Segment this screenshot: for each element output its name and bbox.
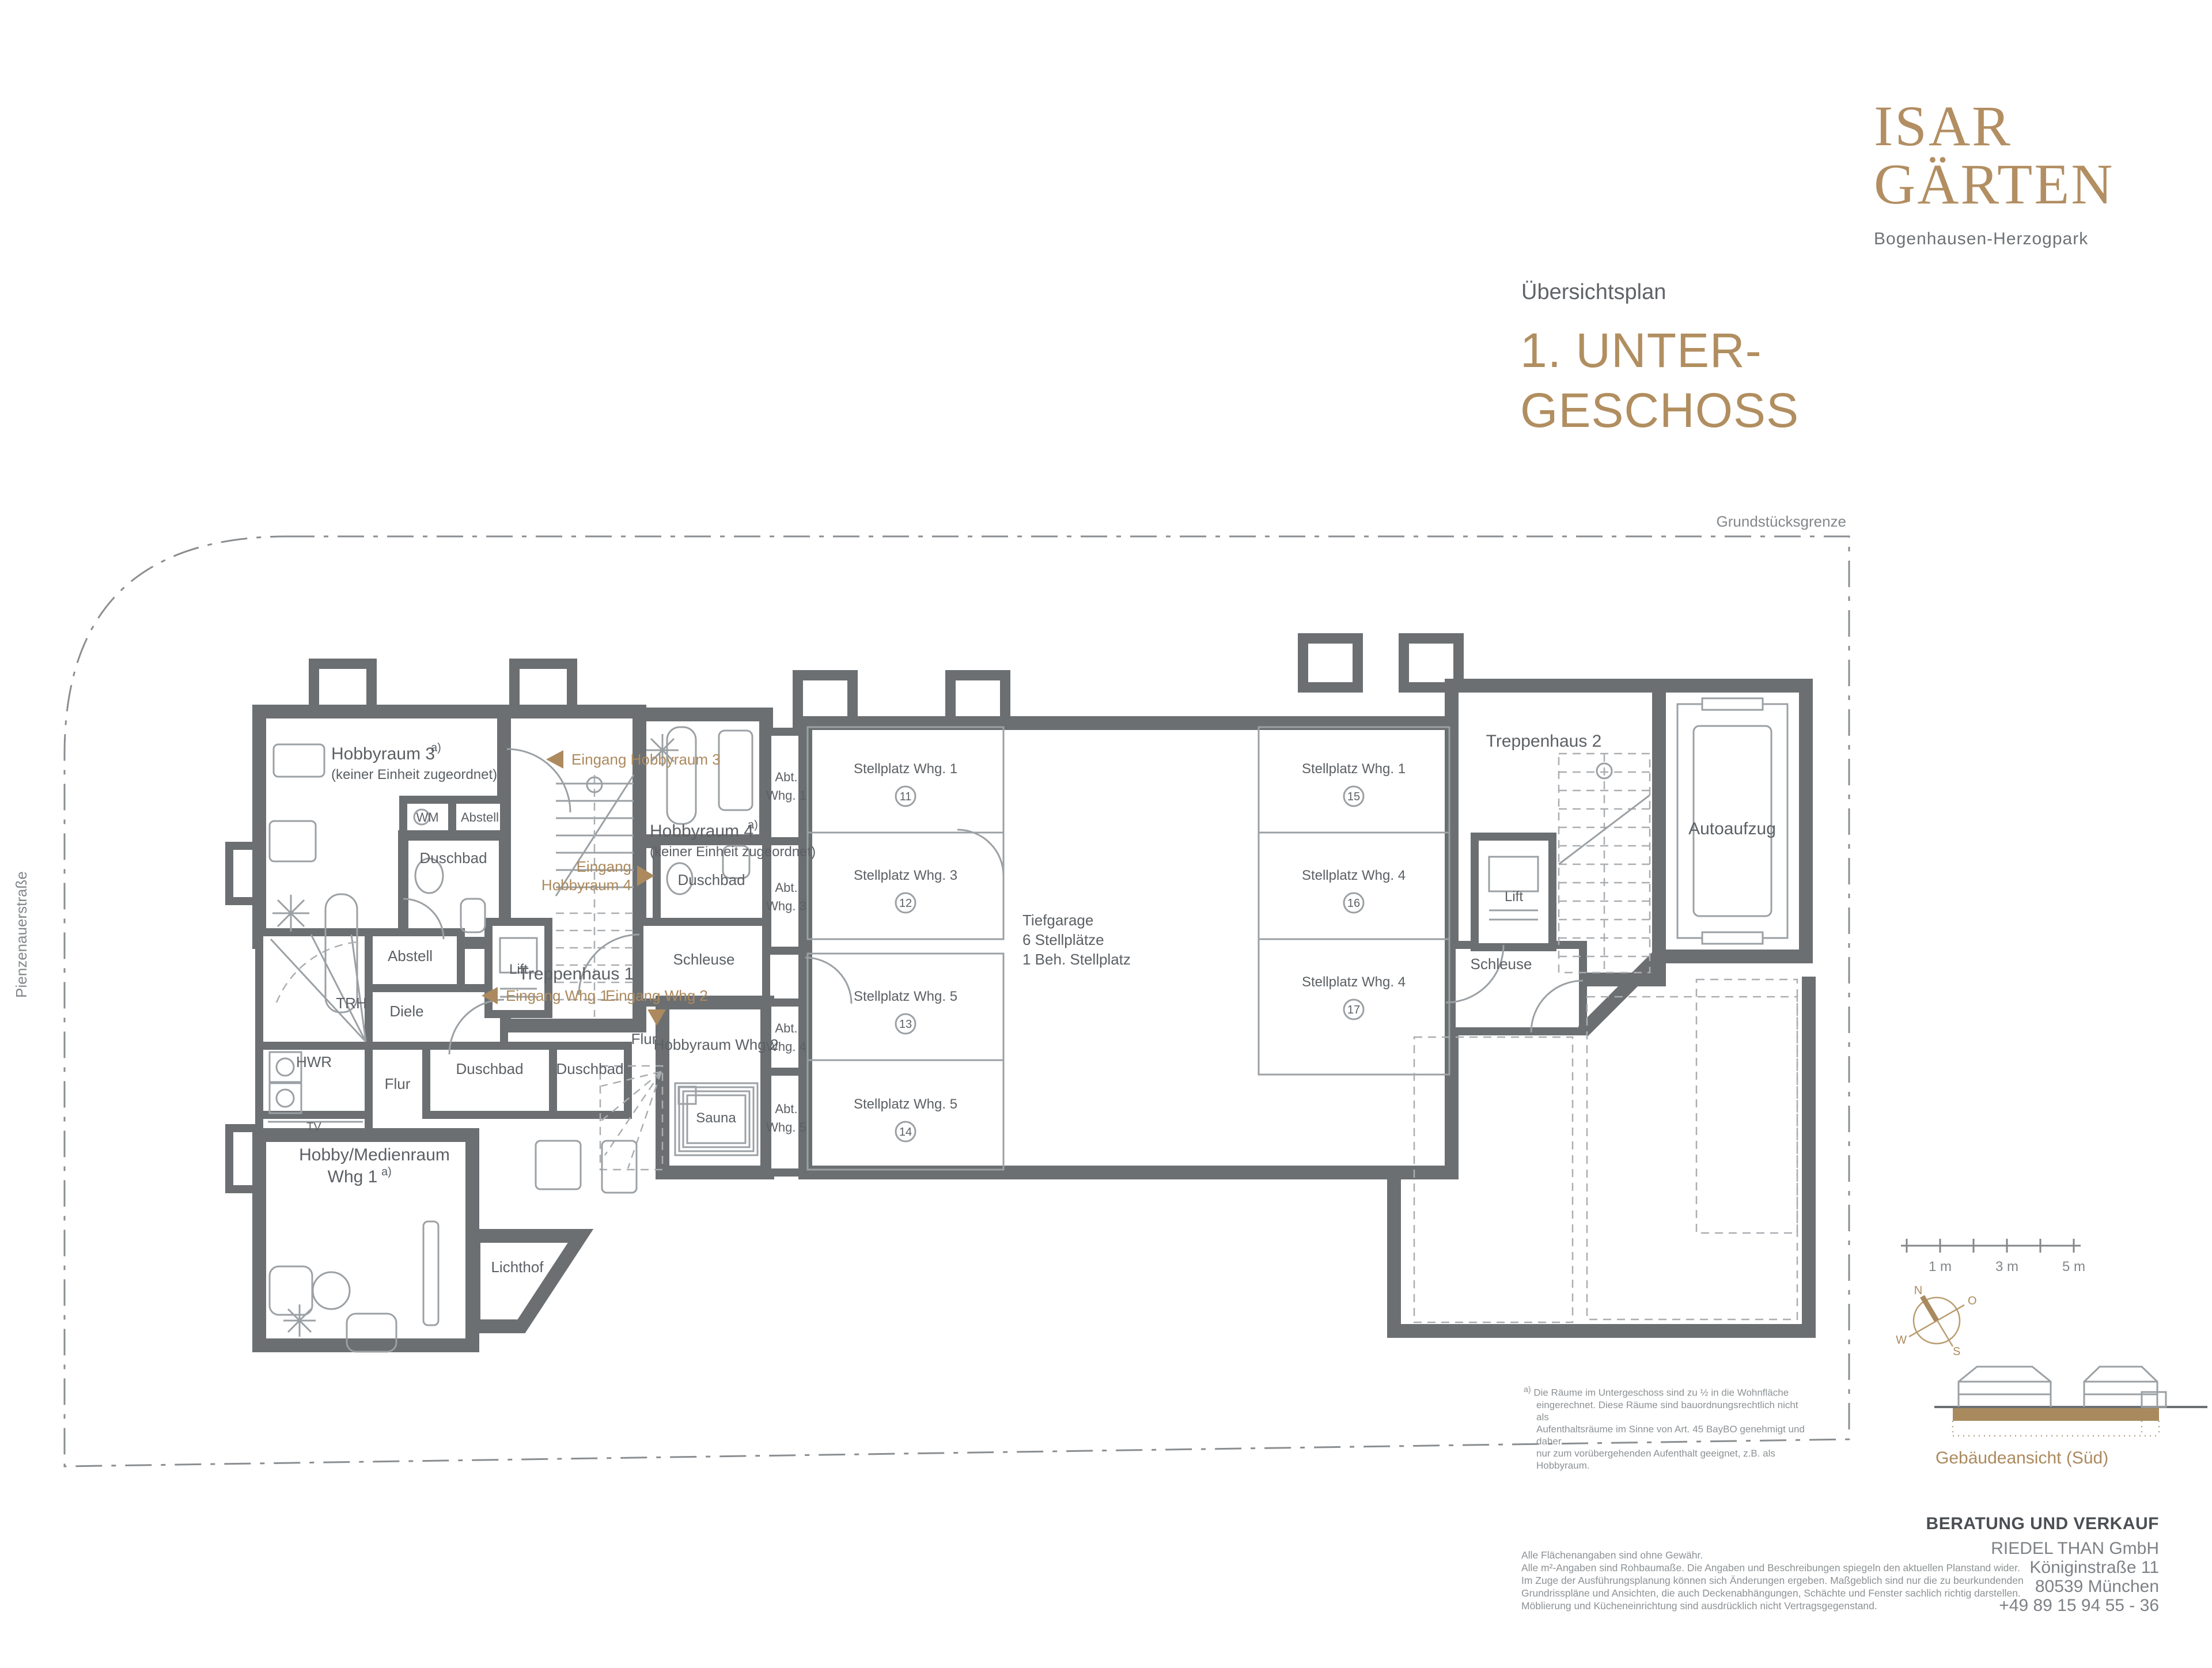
footnote-marker: a) <box>1524 1385 1531 1394</box>
stall-num-15: 15 <box>1347 790 1360 803</box>
contact-phone: +49 89 15 94 55 - 36 <box>1926 1596 2159 1615</box>
room-label-schleuse-rechts: Schleuse <box>1471 955 1532 973</box>
stall-label-11: Stellplatz Whg. 1 <box>854 761 957 777</box>
stall-label-15: Stellplatz Whg. 1 <box>1302 761 1406 777</box>
compass-icon: N O W S <box>1896 1284 1976 1358</box>
elevation-ground <box>1953 1408 2159 1421</box>
stall-label-13: Stellplatz Whg. 5 <box>854 989 957 1004</box>
contact-company: RIEDEL THAN GmbH <box>1926 1539 2159 1558</box>
room-label-hobbyraum3: Hobbyraum 3 <box>331 744 435 763</box>
brochure-page: Pienzenauerstraße Grundstücksgrenze Hobb… <box>0 0 2212 1668</box>
compass-s: S <box>1953 1345 1960 1358</box>
label-tiefgarage: Tiefgarage <box>1022 911 1093 929</box>
room-label-flur-whg1: Flur <box>385 1075 411 1092</box>
room-label-tv: TV <box>306 1121 321 1133</box>
floor-plan-drawing: Pienzenauerstraße Grundstücksgrenze Hobb… <box>0 0 2212 1668</box>
page-title: 1. UNTER- GESCHOSS <box>1520 320 1799 440</box>
rooms-right-block <box>805 686 1809 1331</box>
page-title-line1: 1. UNTER- <box>1520 320 1799 380</box>
room-lichthof <box>474 1236 581 1326</box>
rooms-left-block <box>259 712 639 1345</box>
label-abt5b: Whg. 5 <box>766 1120 806 1134</box>
room-label-schleuse-links: Schleuse <box>673 951 735 968</box>
entrance-hobbyraum4-2: Hobbyraum 4 <box>541 876 631 894</box>
footnote-line: Aufenthaltsräume im Sinne von Art. 45 Ba… <box>1524 1423 1812 1447</box>
stall-label-14: Stellplatz Whg. 5 <box>854 1096 957 1112</box>
scale-5m: 5 m <box>2062 1259 2085 1274</box>
contact-city: 80539 München <box>1926 1577 2159 1596</box>
room-label-hobby-medienraum-2: Whg 1 <box>328 1167 378 1186</box>
label-tiefgarage-3: 1 Beh. Stellplatz <box>1022 951 1131 968</box>
entrance-hobbyraum3: Eingang Hobbyraum 3 <box>571 751 721 768</box>
footnote-ref: a) <box>748 819 758 831</box>
room-label-autoaufzug: Autoaufzug <box>1688 819 1776 838</box>
elevation-label: Gebäudeansicht (Süd) <box>1935 1448 2108 1467</box>
room-label-lift2: Lift <box>1505 889 1523 905</box>
scale-3m: 3 m <box>1995 1259 2018 1274</box>
room-label-hobby-medienraum: Hobby/Medienraum <box>299 1145 450 1164</box>
room-note-hobbyraum3: (keiner Einheit zugeordnet) <box>331 767 497 782</box>
room-label-hobbyraum-whg2: Hobbyraum Whg 2 <box>654 1036 779 1053</box>
scale-1m: 1 m <box>1929 1259 1952 1274</box>
room-label-treppenhaus1: Treppenhaus 1 <box>518 965 634 984</box>
room-duschbad-whg2 <box>553 1046 628 1115</box>
room-label-wm: WM <box>416 810 438 824</box>
stall-label-12: Stellplatz Whg. 3 <box>854 868 957 883</box>
entrance-whg1: Eingang Whg 1 <box>506 987 608 1004</box>
footnote-line: a) Die Räume im Untergeschoss sind zu ½ … <box>1524 1384 1812 1399</box>
room-note-hobbyraum4: (keiner Einheit zugeordnet) <box>650 844 816 860</box>
room-label-diele: Diele <box>389 1003 423 1020</box>
label-tiefgarage-2: 6 Stellplätze <box>1022 931 1104 948</box>
room-label-hobbyraum4: Hobbyraum 4 <box>650 822 753 841</box>
stall-num-11: 11 <box>900 790 912 803</box>
stall-label-17: Stellplatz Whg. 4 <box>1302 974 1406 990</box>
room-label-sauna: Sauna <box>696 1110 736 1126</box>
room-label-duschbad-h3: Duschbad <box>419 849 487 867</box>
street-label: Pienzenauerstraße <box>13 871 30 998</box>
entrance-hobbyraum4-1: Eingang <box>577 858 631 875</box>
brand-subtitle: Bogenhausen-Herzogpark <box>1874 229 2088 249</box>
building-elevation: Gebäudeansicht (Süd) <box>1934 1367 2207 1467</box>
stall-num-16: 16 <box>1347 897 1360 910</box>
room-label-treppenhaus2: Treppenhaus 2 <box>1486 732 1602 751</box>
page-eyebrow: Übersichtsplan <box>1521 280 1666 305</box>
room-label-lichthof: Lichthof <box>491 1258 544 1276</box>
compass-w: W <box>1896 1334 1907 1346</box>
footnote-ref: a) <box>431 742 441 754</box>
stall-num-12: 12 <box>899 897 912 910</box>
label-abt5: Abt. <box>775 1102 797 1116</box>
label-abt4: Abt. <box>775 1021 797 1035</box>
room-label-duschbad-whg1: Duschbad <box>456 1060 523 1077</box>
room-duschbad-whg1 <box>426 1046 553 1115</box>
footnote-text: Die Räume im Untergeschoss sind zu ½ in … <box>1533 1387 1789 1398</box>
page-title-line2: GESCHOSS <box>1520 380 1799 440</box>
room-label-abstell-klein: Abstell <box>461 810 499 824</box>
label-abt3b: Whg. 3 <box>766 899 806 913</box>
stall-num-17: 17 <box>1347 1004 1360 1016</box>
label-abt3: Abt. <box>775 880 797 895</box>
room-label-lift1: Lift <box>509 962 528 977</box>
room-label-duschbad-whg2: Duschbad <box>556 1060 623 1077</box>
label-abt4b: Whg. 4 <box>766 1039 806 1054</box>
boundary-label: Grundstücksgrenze <box>1717 513 1846 530</box>
room-label-duschbad-mitte: Duschbad <box>677 871 745 888</box>
contact-block: BERATUNG UND VERKAUF RIEDEL THAN GmbH Kö… <box>1926 1514 2159 1615</box>
room-label-trh: TRH <box>336 994 366 1012</box>
footnote-block: a) Die Räume im Untergeschoss sind zu ½ … <box>1524 1384 1812 1472</box>
label-abt1b: Whg. 1 <box>766 788 806 803</box>
brand-line1: ISAR <box>1874 97 2115 155</box>
brand-line2: GÄRTEN <box>1874 155 2115 213</box>
stall-num-13: 13 <box>899 1018 912 1031</box>
label-abt1: Abt. <box>775 770 797 784</box>
footnote-line: nur zum vorübergehenden Aufenthalt geeig… <box>1524 1447 1812 1472</box>
brand-logo: ISAR GÄRTEN <box>1874 97 2115 213</box>
room-trh <box>259 932 369 1046</box>
room-label-abstell: Abstell <box>388 947 433 965</box>
scale-bar: 1 m 3 m 5 m <box>1901 1239 2085 1274</box>
footnote-ref: a) <box>381 1166 392 1178</box>
contact-heading: BERATUNG UND VERKAUF <box>1926 1514 2159 1534</box>
contact-street: Königinstraße 11 <box>1926 1558 2159 1577</box>
footnote-line: eingerechnet. Diese Räume sind bauordnun… <box>1524 1399 1812 1423</box>
compass-o: O <box>1968 1295 1977 1307</box>
entrance-whg2: Eingang Whg 2 <box>605 987 708 1004</box>
compass-n: N <box>1914 1284 1922 1297</box>
room-label-hwr: HWR <box>296 1053 332 1071</box>
stall-num-14: 14 <box>899 1126 912 1139</box>
stall-label-16: Stellplatz Whg. 4 <box>1302 868 1406 883</box>
